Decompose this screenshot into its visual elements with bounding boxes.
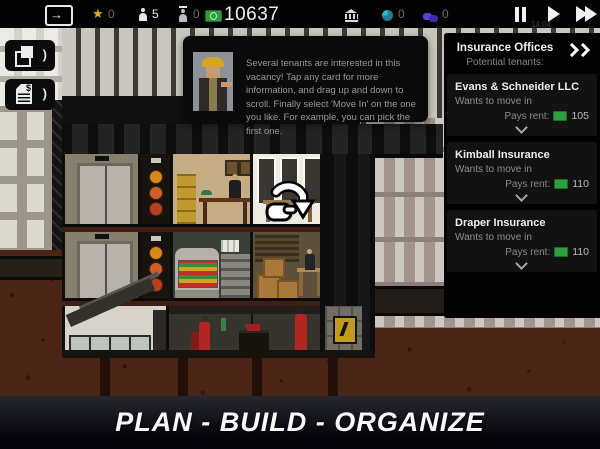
cardboard-box — [277, 280, 299, 300]
panel-title: Insurance Offices — [444, 42, 566, 54]
counter-base — [175, 290, 219, 298]
tenant-name: Draper Insurance — [455, 217, 545, 229]
elevator-display — [95, 156, 109, 161]
workers-count: 5 — [152, 0, 159, 28]
rent-row: Pays rent: 110 — [505, 246, 589, 258]
rooms-tool-button[interactable]: ) — [5, 40, 55, 71]
tenant-status: Wants to move in — [455, 96, 532, 107]
file-cabinet — [177, 174, 196, 224]
influence-icon — [382, 8, 393, 22]
workers-icon — [139, 7, 147, 21]
waiter — [295, 314, 307, 352]
cash-icon — [554, 179, 568, 189]
foundation-column — [328, 352, 338, 396]
elevator-doors — [77, 163, 133, 228]
visitors-icon — [179, 7, 187, 21]
foundation-column — [252, 352, 262, 396]
influence-count: 0 — [398, 0, 405, 28]
tenant-status: Wants to move in — [455, 232, 532, 243]
cardboard-box — [263, 258, 285, 278]
cash-icon — [553, 111, 567, 121]
fast-forward-button[interactable] — [576, 6, 597, 22]
deals-count: 0 — [442, 0, 449, 28]
underground-pipe-left — [0, 256, 62, 280]
lobby-door — [153, 310, 166, 352]
marketing-banner: PLAN - BUILD - ORGANIZE — [0, 396, 600, 449]
pause-button[interactable] — [515, 6, 526, 22]
building-right-edge — [372, 124, 375, 352]
ground-right — [362, 328, 600, 400]
deals-icon — [423, 10, 438, 24]
tenant-name: Evans & Schneider LLC — [455, 81, 579, 93]
advisor-portrait — [193, 52, 233, 111]
rent-label: Pays rent: — [504, 111, 549, 122]
lobby — [62, 306, 166, 352]
cash-amount: 10637 — [224, 0, 279, 28]
chevron-down-icon[interactable] — [515, 121, 528, 134]
restaurant — [166, 306, 322, 352]
bottle — [221, 318, 226, 331]
elevator-floor3 — [62, 154, 138, 228]
vending-machine — [221, 254, 251, 298]
banner-text: PLAN - BUILD - ORGANIZE — [115, 407, 484, 438]
expand-chevron-icon: ) — [43, 86, 47, 101]
city-hall-icon[interactable] — [345, 8, 358, 22]
building-base-slab — [62, 350, 375, 358]
foundation-column — [100, 352, 110, 396]
rent-value: 110 — [572, 178, 589, 190]
bottle-shelf — [221, 240, 239, 252]
wall-divider — [320, 154, 323, 352]
game-screen: PLAN - BUILD - ORGANIZE → ★ 0 5 0 10637 … — [0, 0, 600, 449]
ceiling-lamp — [151, 158, 161, 163]
rent-label: Pays rent: — [505, 179, 550, 190]
food-counter — [175, 248, 219, 298]
rent-row: Pays rent: 105 — [504, 110, 589, 122]
food-shop-floor2 — [170, 232, 250, 298]
desk-lamp — [201, 190, 212, 195]
food-display — [178, 260, 218, 288]
wall-picture — [225, 160, 239, 176]
foundation-column — [178, 352, 188, 396]
panel-subtitle: Potential tenants: — [444, 57, 566, 68]
ceiling-lamp — [151, 236, 161, 241]
tutorial-text: Several tenants are interested in this v… — [246, 57, 420, 138]
tenant-status: Wants to move in — [455, 164, 532, 175]
storage-worker — [305, 254, 315, 270]
star-count: 0 — [108, 0, 115, 28]
coffee-sign — [149, 246, 163, 260]
elevator-display — [95, 234, 109, 239]
exit-arrow-icon: → — [50, 6, 63, 23]
vending-corridor-floor3 — [138, 154, 170, 228]
rent-value: 110 — [572, 246, 589, 258]
chevron-down-icon[interactable] — [515, 189, 528, 202]
office-desk — [199, 198, 251, 202]
rent-label: Pays rent: — [505, 247, 550, 258]
invoice-icon: $ — [16, 84, 32, 104]
tenant-card-draper[interactable]: Draper Insurance Wants to move in Pays r… — [447, 210, 597, 272]
double-chevron-icon2 — [575, 43, 589, 57]
exit-button[interactable]: → — [45, 5, 73, 26]
rent-value: 105 — [571, 110, 589, 122]
tenant-name: Kimball Insurance — [455, 149, 550, 161]
electrical-box — [333, 316, 357, 344]
visitors-count: 0 — [193, 0, 200, 28]
restaurant-chair — [191, 332, 199, 352]
office-worker — [229, 180, 241, 198]
tap-gesture-icon — [262, 168, 318, 228]
fire-escape — [52, 100, 62, 256]
seated-customer — [199, 322, 210, 352]
tenant-card-evans-schneider[interactable]: Evans & Schneider LLC Wants to move in P… — [447, 74, 597, 136]
expand-chevron-icon: ) — [43, 47, 47, 62]
tutorial-tooltip: Several tenants are interested in this v… — [183, 36, 428, 122]
finance-report-button[interactable]: $ ) — [5, 79, 55, 110]
snack-sign — [149, 202, 163, 216]
tenant-panel: Insurance Offices Potential tenants: Eva… — [444, 33, 600, 318]
chevron-down-icon[interactable] — [515, 257, 528, 270]
pointing-arm — [221, 82, 232, 87]
star-icon: ★ — [92, 7, 104, 21]
hanging-lamp — [251, 314, 253, 324]
game-clock: 14:04 — [531, 20, 551, 29]
coffee-sign — [149, 170, 163, 184]
donut-sign — [149, 186, 163, 200]
top-bar: → ★ 0 5 0 10637 0 0 — [0, 0, 600, 28]
storage-office-floor2 — [250, 232, 322, 298]
overlapping-squares-icon-front — [21, 46, 33, 58]
office-floor3 — [170, 154, 250, 224]
utility-room — [322, 306, 362, 352]
collapse-panel-button[interactable] — [564, 40, 590, 60]
cash-icon — [554, 247, 568, 257]
overall-strap — [209, 78, 217, 111]
cash-icon — [205, 9, 222, 23]
tenant-card-kimball[interactable]: Kimball Insurance Wants to move in Pays … — [447, 142, 597, 204]
rent-row: Pays rent: 110 — [505, 178, 589, 190]
